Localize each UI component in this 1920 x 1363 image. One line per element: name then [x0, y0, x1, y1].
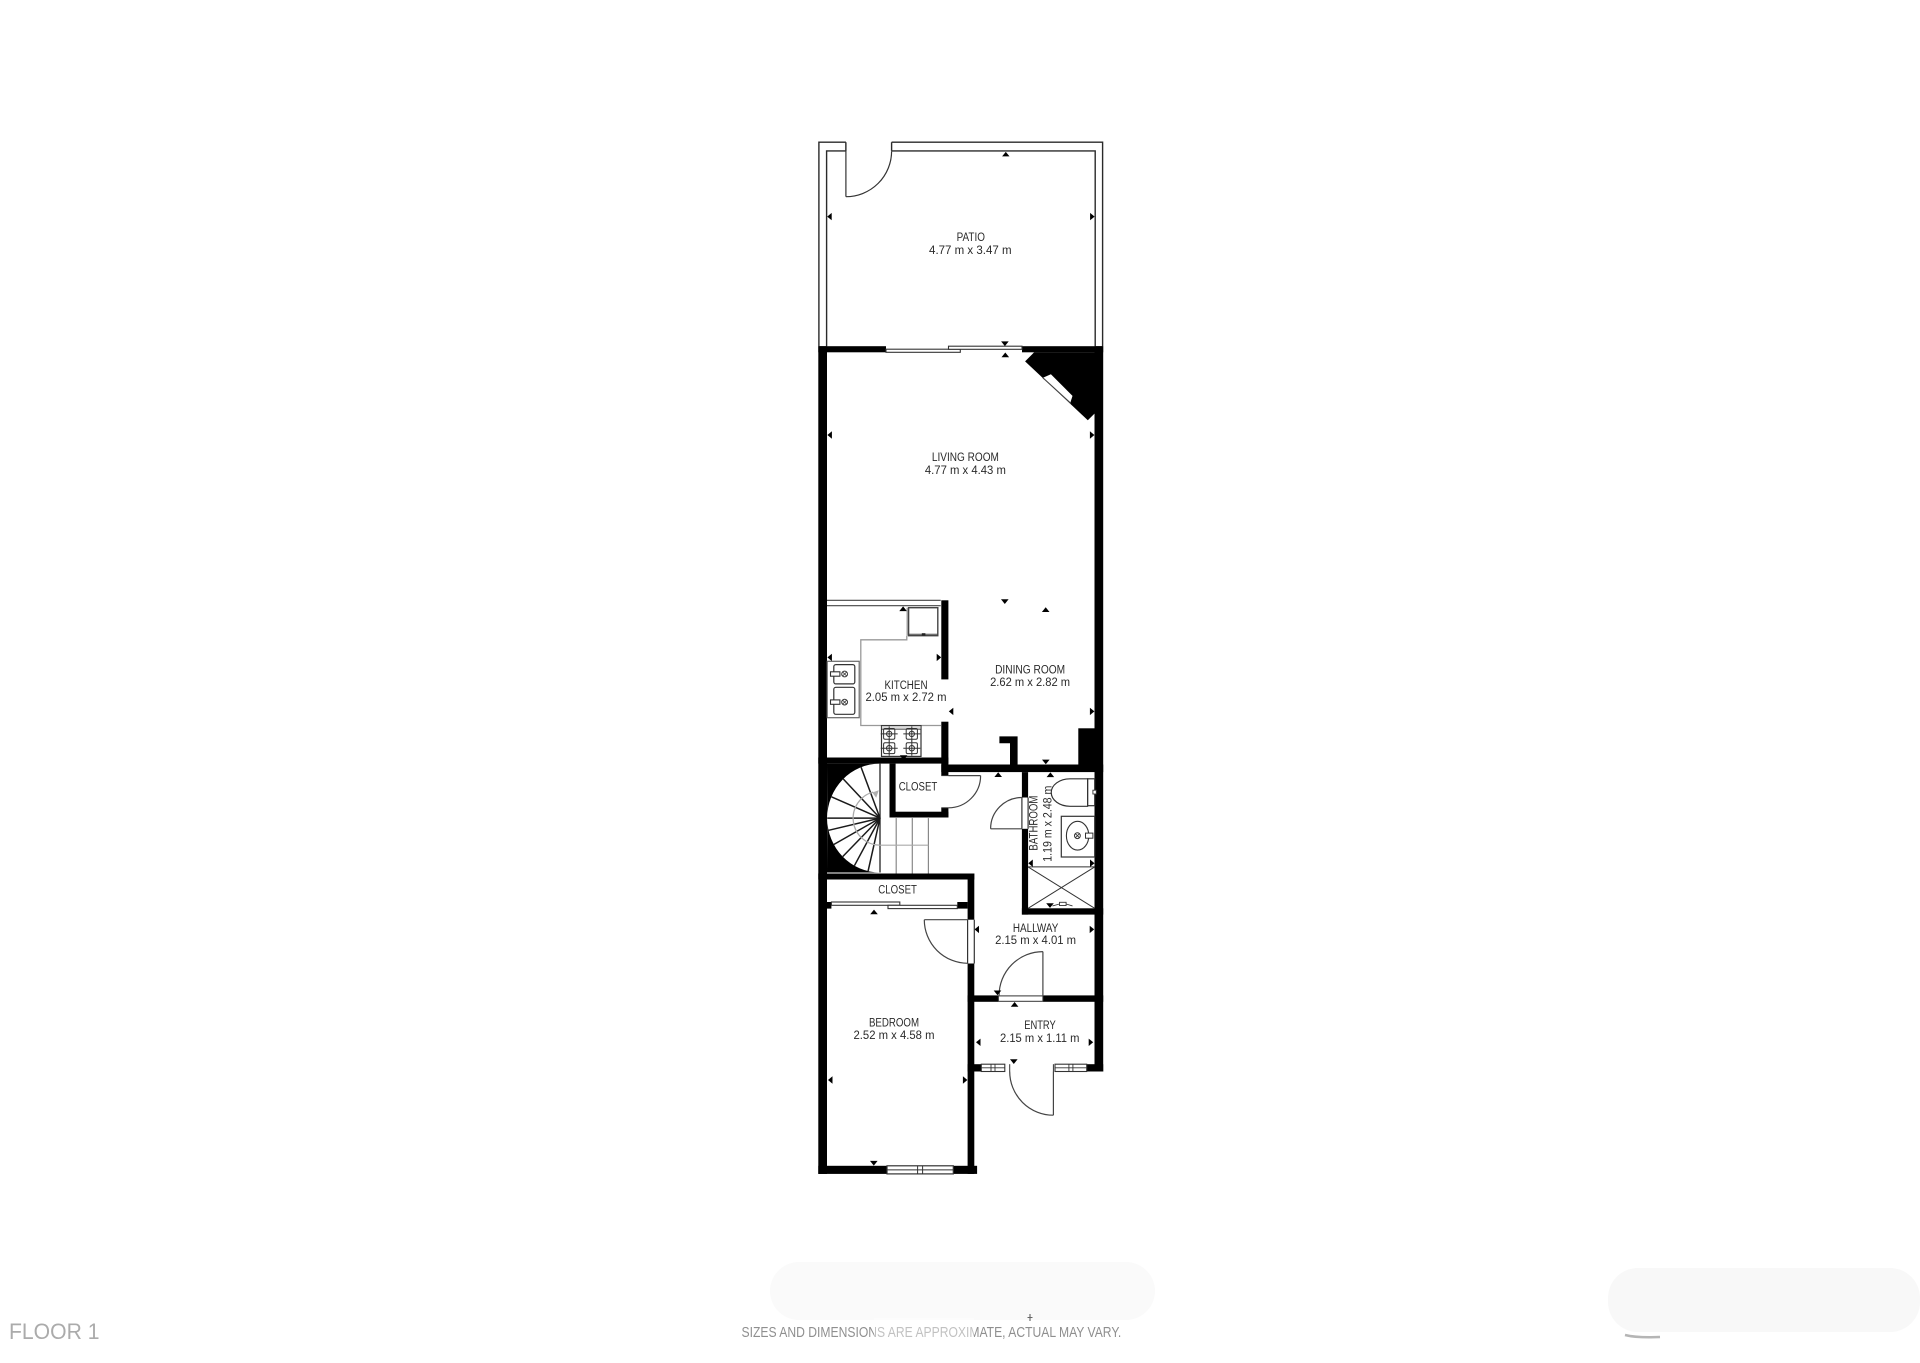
svg-text:FLOOR 1: FLOOR 1 — [9, 1319, 100, 1344]
svg-text:BEDROOM: BEDROOM — [869, 1017, 919, 1029]
svg-text:HALLWAY: HALLWAY — [1013, 923, 1059, 935]
svg-text:LIVING ROOM: LIVING ROOM — [932, 452, 999, 464]
svg-text:BATHROOM: BATHROOM — [1029, 796, 1041, 851]
svg-text:CLOSET: CLOSET — [878, 885, 917, 897]
svg-text:CLOSET: CLOSET — [899, 782, 938, 794]
svg-text:DINING ROOM: DINING ROOM — [995, 665, 1065, 677]
svg-text:KITCHEN: KITCHEN — [884, 680, 927, 692]
svg-text:PATIO: PATIO — [957, 232, 985, 244]
svg-text:2.15 m x 4.01 m: 2.15 m x 4.01 m — [995, 935, 1076, 947]
svg-text:1.19 m x 2.48 m: 1.19 m x 2.48 m — [1043, 786, 1055, 862]
svg-text:2.52 m x 4.58 m: 2.52 m x 4.58 m — [854, 1030, 935, 1042]
svg-text:2.15 m x 1.11 m: 2.15 m x 1.11 m — [1000, 1033, 1079, 1045]
svg-text:4.77 m x 4.43 m: 4.77 m x 4.43 m — [925, 465, 1006, 477]
svg-text:4.77 m x 3.47 m: 4.77 m x 3.47 m — [929, 245, 1012, 257]
svg-text:2.62 m x 2.82 m: 2.62 m x 2.82 m — [990, 677, 1070, 689]
svg-text:ENTRY: ENTRY — [1024, 1020, 1056, 1032]
svg-text:2.05 m x 2.72 m: 2.05 m x 2.72 m — [866, 692, 947, 704]
